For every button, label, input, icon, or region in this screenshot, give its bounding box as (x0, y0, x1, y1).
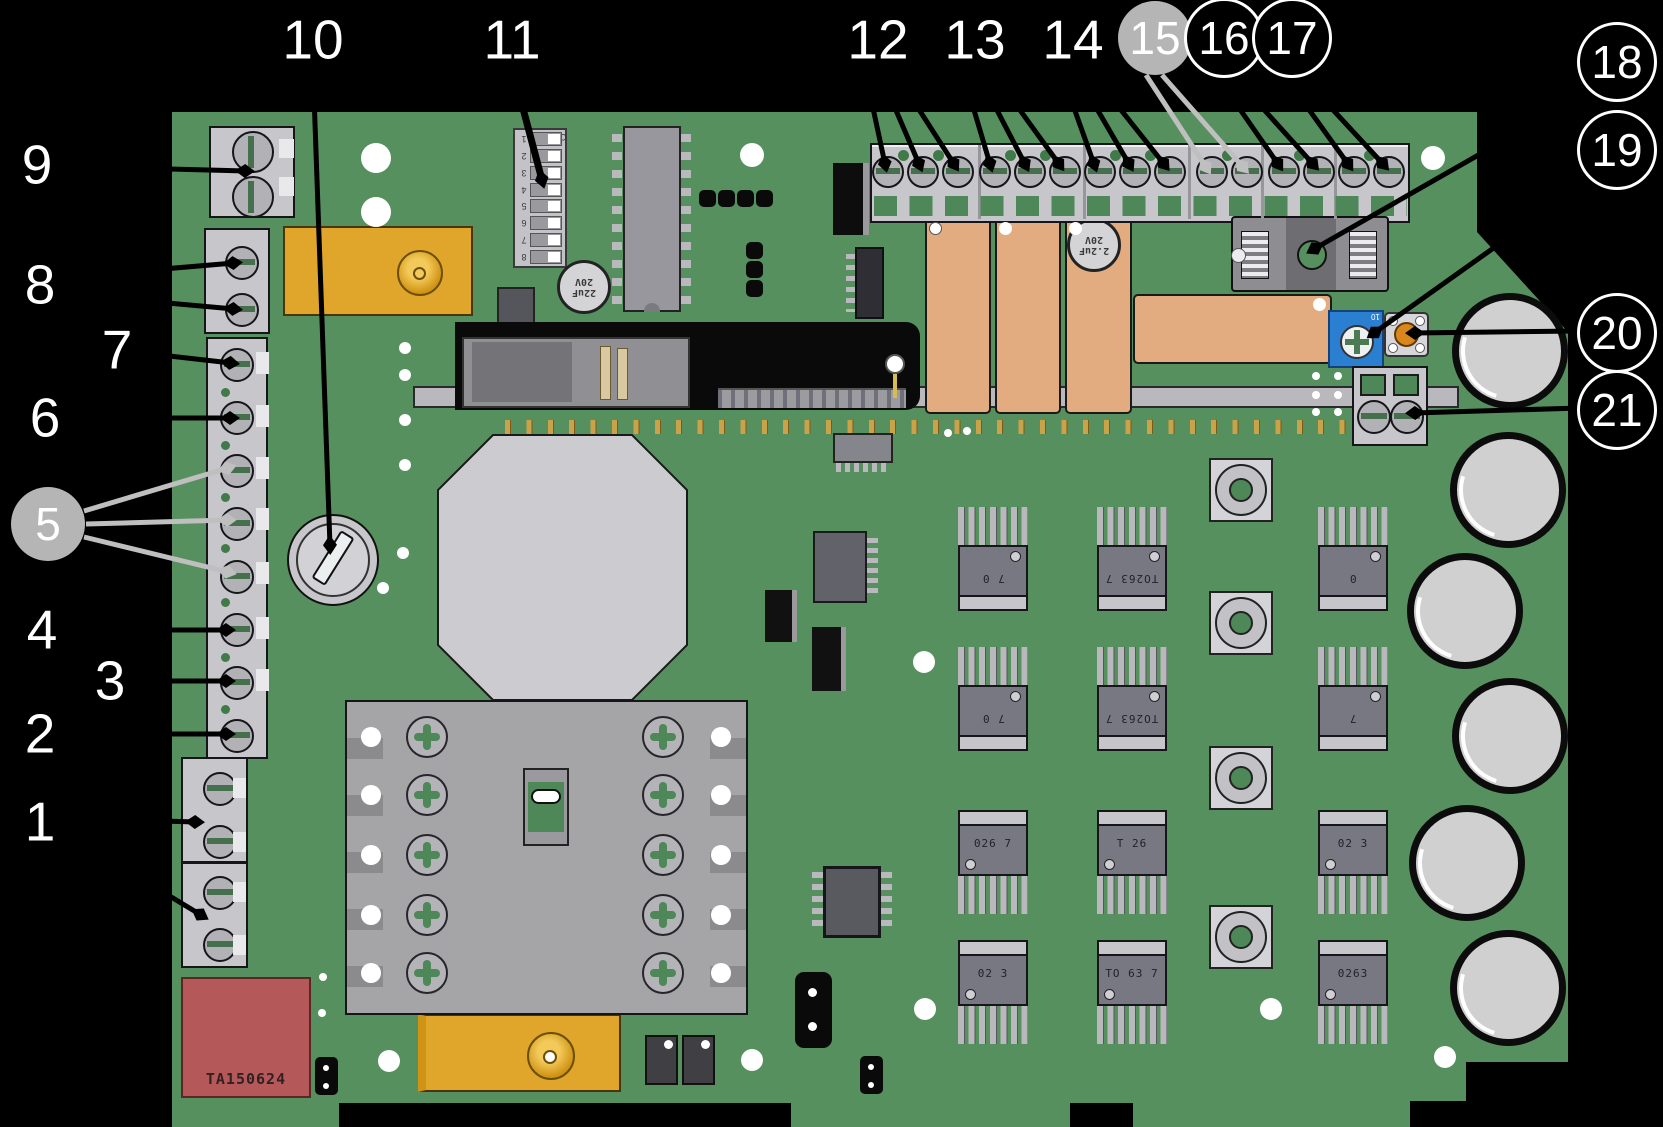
callout-12: 12 (847, 13, 908, 68)
callout-1: 1 (25, 795, 56, 850)
callout-5: 5 (11, 487, 85, 561)
pcb-callout-diagram: TA150624 ON 1 2 3 4 5 6 7 8 22uF 20V 2.2… (0, 0, 1663, 1127)
callout-2: 2 (25, 707, 56, 762)
callout-17: 17 (1252, 0, 1332, 78)
callout-21: 21 (1577, 370, 1657, 450)
callout-lines (0, 0, 1663, 1127)
callout-11: 11 (483, 13, 540, 68)
callout-4: 4 (27, 603, 58, 658)
callout-10: 10 (282, 13, 343, 68)
callout-7: 7 (102, 323, 133, 378)
callout-6: 6 (30, 391, 61, 446)
callout-14: 14 (1042, 13, 1103, 68)
callout-20: 20 (1577, 293, 1657, 373)
callout-3: 3 (95, 654, 126, 709)
callout-18: 18 (1577, 22, 1657, 102)
callout-9: 9 (22, 138, 53, 193)
callout-8: 8 (25, 258, 56, 313)
callout-15: 15 (1118, 1, 1192, 75)
callout-13: 13 (944, 13, 1005, 68)
callout-19: 19 (1577, 110, 1657, 190)
